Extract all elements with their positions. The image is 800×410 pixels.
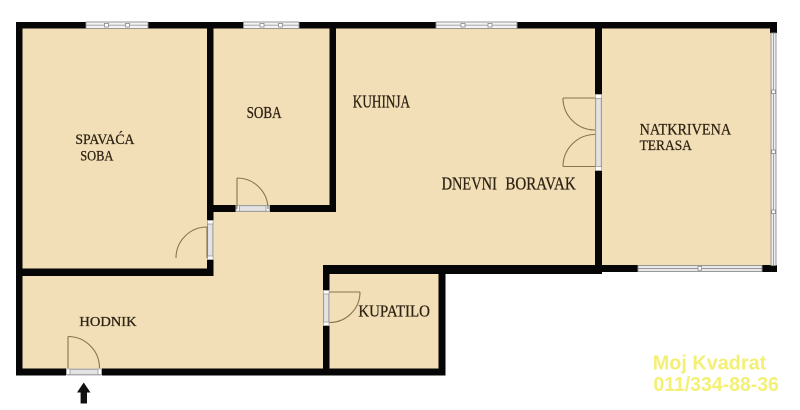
- svg-text:011/334-88-36: 011/334-88-36: [653, 374, 779, 396]
- svg-text:SPAVAĆA: SPAVAĆA: [75, 131, 135, 148]
- svg-text:HODNIK: HODNIK: [79, 314, 136, 329]
- svg-text:KUHINJA: KUHINJA: [353, 92, 410, 112]
- svg-text:SOBA: SOBA: [80, 149, 114, 165]
- svg-text:SOBA: SOBA: [247, 103, 282, 122]
- svg-text:TERASA: TERASA: [640, 138, 692, 154]
- svg-text:DNEVNI: DNEVNI: [442, 174, 497, 194]
- svg-text:KUPATILO: KUPATILO: [358, 302, 430, 321]
- svg-text:NATKRIVENA: NATKRIVENA: [640, 121, 732, 138]
- svg-text:Moj Kvadrat: Moj Kvadrat: [653, 353, 767, 375]
- svg-text:BORAVAK: BORAVAK: [505, 174, 575, 194]
